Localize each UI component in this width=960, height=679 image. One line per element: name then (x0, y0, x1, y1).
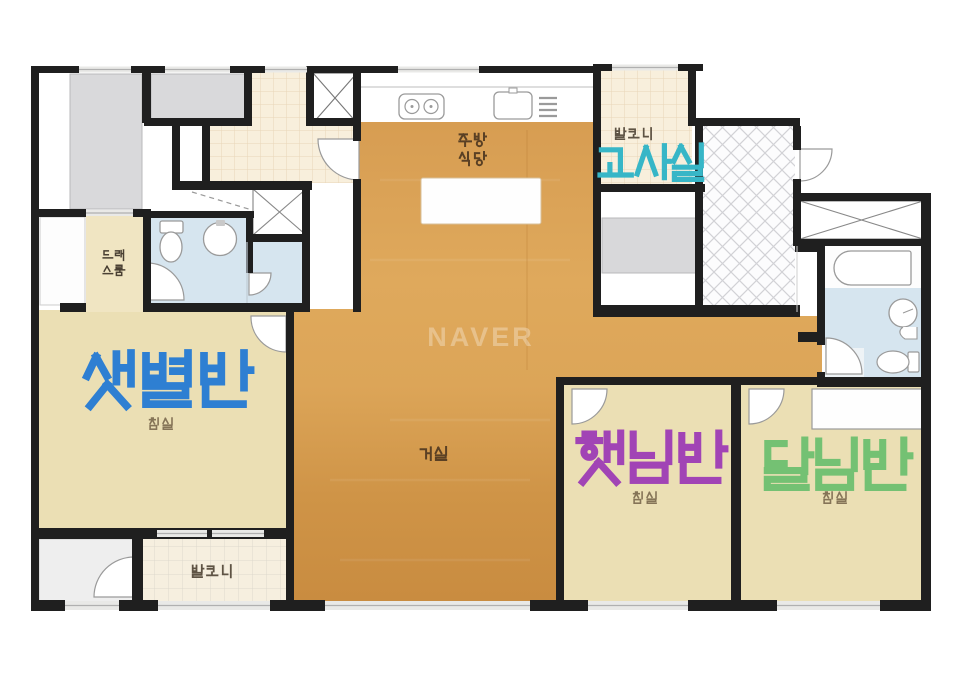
svg-text:NAVER: NAVER (427, 322, 535, 352)
